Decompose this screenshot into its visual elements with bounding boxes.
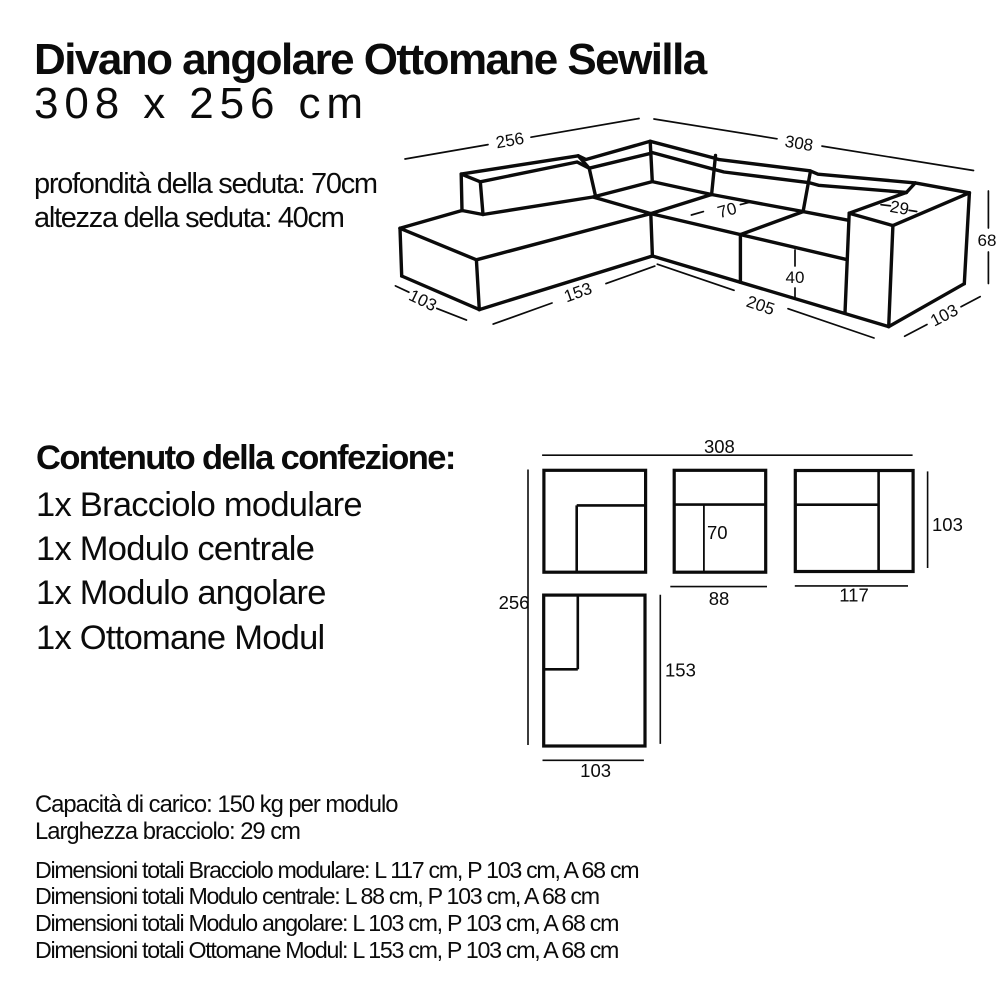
svg-text:70: 70 (715, 199, 738, 222)
svg-text:40: 40 (786, 268, 805, 287)
svg-text:68: 68 (978, 231, 997, 250)
svg-text:29: 29 (888, 197, 910, 219)
svg-text:88: 88 (709, 588, 730, 609)
svg-text:308: 308 (783, 132, 814, 155)
svg-text:103: 103 (927, 300, 961, 330)
svg-text:256: 256 (499, 592, 530, 613)
svg-text:153: 153 (665, 660, 696, 681)
svg-text:256: 256 (494, 129, 525, 153)
svg-text:103: 103 (932, 514, 963, 535)
svg-text:308: 308 (704, 436, 735, 457)
svg-text:205: 205 (744, 292, 777, 319)
svg-text:70: 70 (707, 522, 728, 543)
svg-text:103: 103 (580, 760, 611, 781)
svg-text:117: 117 (839, 585, 869, 606)
